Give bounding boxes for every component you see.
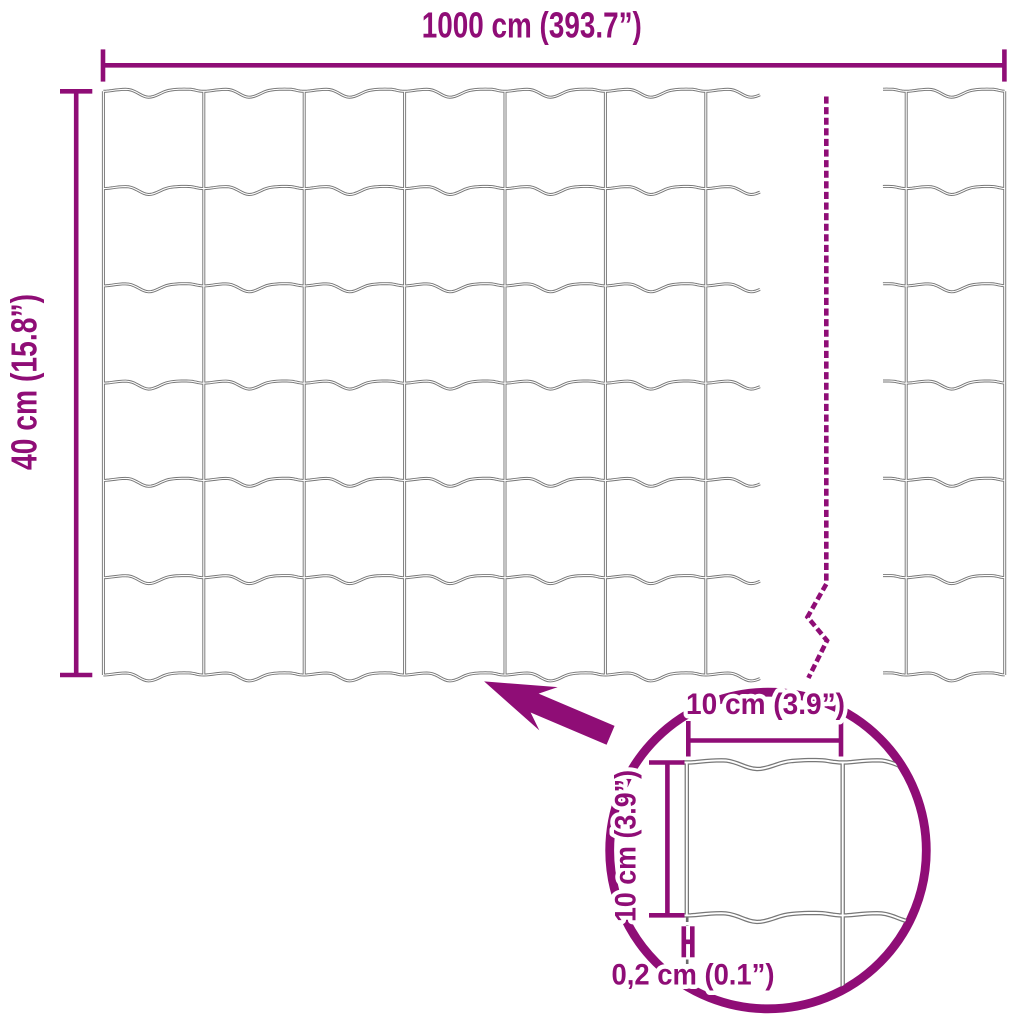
svg-text:10 cm (3.9”): 10 cm (3.9”): [686, 688, 845, 721]
svg-text:10 cm (3.9”): 10 cm (3.9”): [610, 770, 643, 922]
svg-text:1000 cm (393.7”): 1000 cm (393.7”): [422, 5, 642, 46]
svg-text:0,2 cm (0.1”): 0,2 cm (0.1”): [612, 959, 775, 992]
svg-text:40 cm (15.8”): 40 cm (15.8”): [4, 294, 45, 470]
